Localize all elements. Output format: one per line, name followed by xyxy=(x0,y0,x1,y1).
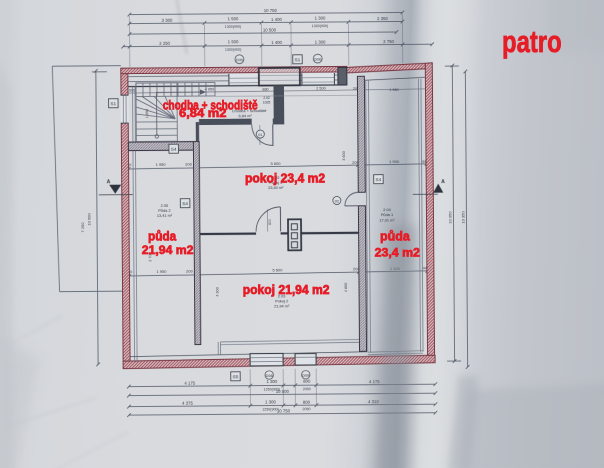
svg-text:880: 880 xyxy=(262,88,268,92)
svg-text:půda: půda xyxy=(380,228,411,243)
svg-text:17,01 m²: 17,01 m² xyxy=(379,218,395,223)
svg-text:2 350: 2 350 xyxy=(377,16,388,21)
svg-text:1 950: 1 950 xyxy=(156,162,167,167)
svg-text:D06: D06 xyxy=(314,57,321,61)
svg-text:1 300: 1 300 xyxy=(266,379,277,384)
svg-text:S4: S4 xyxy=(182,201,188,206)
svg-text:S4: S4 xyxy=(171,147,177,152)
svg-text:10 500: 10 500 xyxy=(263,27,277,32)
svg-text:2 500: 2 500 xyxy=(316,86,326,90)
svg-text:6,84 m²: 6,84 m² xyxy=(239,113,253,118)
svg-text:4 300: 4 300 xyxy=(216,287,220,297)
svg-text:1 400: 1 400 xyxy=(271,17,282,22)
svg-text:1300(900): 1300(900) xyxy=(225,48,241,52)
svg-text:1 980: 1 980 xyxy=(389,88,399,92)
svg-text:21,94 m2: 21,94 m2 xyxy=(142,243,194,257)
svg-text:10 750: 10 750 xyxy=(277,408,291,413)
svg-text:10 050: 10 050 xyxy=(447,211,452,224)
svg-text:500: 500 xyxy=(129,89,135,93)
svg-text:S5: S5 xyxy=(233,374,239,379)
svg-text:7 250: 7 250 xyxy=(80,222,85,233)
svg-text:3 300: 3 300 xyxy=(162,18,173,23)
svg-text:2050: 2050 xyxy=(302,407,310,411)
svg-text:5 600: 5 600 xyxy=(272,267,283,272)
svg-text:1025: 1025 xyxy=(263,100,271,104)
svg-text:4 375: 4 375 xyxy=(182,401,193,406)
svg-text:4 175: 4 175 xyxy=(184,381,195,386)
svg-text:D05: D05 xyxy=(236,58,243,62)
svg-text:půda: půda xyxy=(148,229,176,244)
svg-text:1 400: 1 400 xyxy=(271,40,282,45)
svg-text:1 500: 1 500 xyxy=(228,39,239,44)
svg-text:2 250: 2 250 xyxy=(159,41,170,46)
svg-text:23,4 m2: 23,4 m2 xyxy=(375,246,421,260)
svg-text:patro: patro xyxy=(502,24,562,59)
svg-text:A: A xyxy=(107,179,111,185)
svg-text:2 750: 2 750 xyxy=(383,39,394,44)
svg-text:2050: 2050 xyxy=(303,387,311,391)
svg-text:10 500: 10 500 xyxy=(276,389,290,394)
svg-text:S1: S1 xyxy=(110,101,116,106)
svg-text:D08: D08 xyxy=(266,374,273,378)
svg-text:200: 200 xyxy=(185,162,192,167)
svg-text:10 600: 10 600 xyxy=(86,213,91,226)
svg-text:01: 01 xyxy=(258,133,262,137)
svg-text:4 800: 4 800 xyxy=(344,283,348,293)
svg-text:1300(900): 1300(900) xyxy=(225,25,241,29)
svg-text:4 175: 4 175 xyxy=(369,379,380,384)
svg-text:1 950: 1 950 xyxy=(156,269,167,274)
svg-text:pokoj 21,94 m2: pokoj 21,94 m2 xyxy=(243,283,330,297)
svg-text:Půda 1: Půda 1 xyxy=(381,212,393,217)
svg-text:10 750: 10 750 xyxy=(264,8,278,13)
svg-text:pokoj 23,4 m2: pokoj 23,4 m2 xyxy=(245,171,325,185)
svg-text:A: A xyxy=(441,179,445,185)
svg-text:4 310: 4 310 xyxy=(368,399,379,404)
svg-text:800: 800 xyxy=(268,219,272,225)
svg-text:5 600: 5 600 xyxy=(271,161,282,166)
svg-text:800: 800 xyxy=(303,400,311,405)
svg-text:1300(900): 1300(900) xyxy=(312,24,328,28)
svg-text:10 350: 10 350 xyxy=(460,211,465,224)
svg-text:1 300: 1 300 xyxy=(265,399,276,404)
svg-text:200: 200 xyxy=(186,269,193,274)
svg-text:800: 800 xyxy=(303,379,311,384)
svg-text:23,40 m²: 23,40 m² xyxy=(268,185,284,190)
svg-text:S1: S1 xyxy=(295,57,301,62)
svg-text:21,94 m²: 21,94 m² xyxy=(274,303,290,308)
svg-text:13,41 m²: 13,41 m² xyxy=(157,213,173,218)
svg-text:1 500: 1 500 xyxy=(228,16,239,21)
svg-text:3 600: 3 600 xyxy=(342,151,346,161)
svg-text:1 300: 1 300 xyxy=(315,16,326,21)
svg-text:02: 02 xyxy=(335,199,339,203)
svg-text:D09: D09 xyxy=(302,373,309,377)
svg-text:1 300: 1 300 xyxy=(315,40,326,45)
svg-text:6,84 m2: 6,84 m2 xyxy=(179,106,227,119)
svg-text:1 930: 1 930 xyxy=(389,159,400,164)
svg-text:S4: S4 xyxy=(376,177,382,182)
